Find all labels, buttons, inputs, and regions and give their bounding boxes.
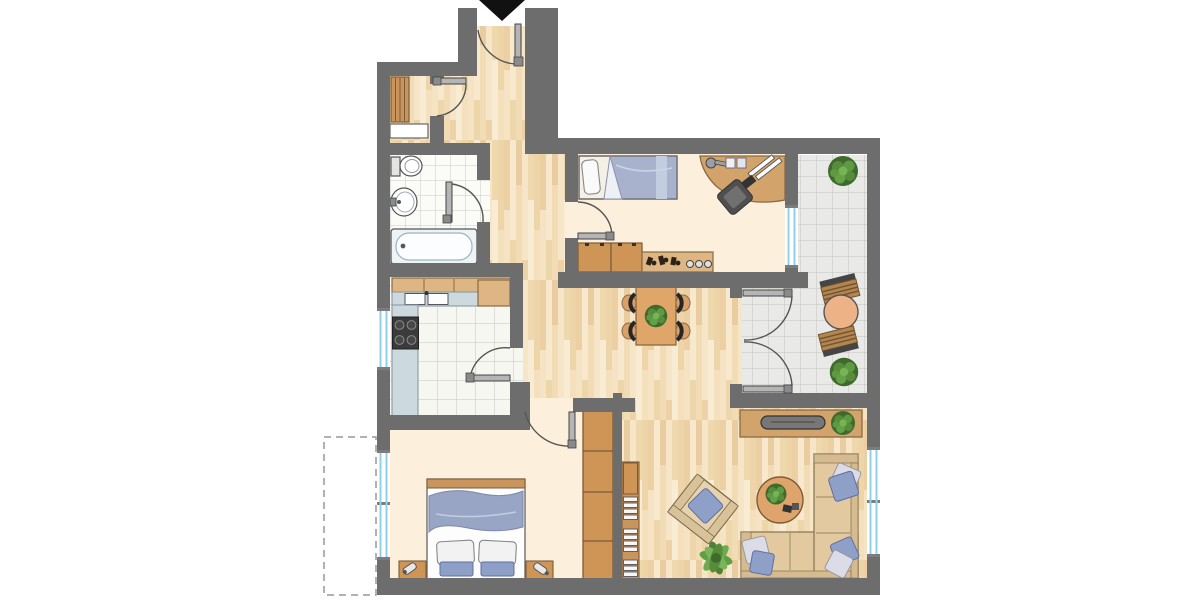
nightstand-left (399, 561, 426, 579)
wall (573, 398, 635, 412)
potted-plant (830, 358, 859, 387)
wall-kitchen-right (510, 277, 523, 348)
bed-pillow (436, 540, 474, 565)
bed-pillow-blue (440, 562, 473, 576)
lowboard-plant (831, 411, 855, 435)
floor-plan (0, 0, 1200, 600)
desk-papers (737, 158, 746, 168)
wall (565, 154, 578, 202)
wall (730, 288, 742, 298)
wall (525, 8, 558, 148)
balcony-table (824, 295, 858, 329)
wall-bathroom-top (377, 143, 490, 155)
wall-bedroom-top (525, 138, 798, 154)
wall (785, 154, 798, 205)
wall-balcony-right (867, 140, 880, 408)
wall (477, 222, 490, 263)
desk-papers (726, 158, 735, 168)
wardrobe (583, 406, 613, 582)
wall-exterior-left (377, 370, 390, 450)
closet-shelf-rack (391, 77, 409, 122)
wall (510, 382, 530, 430)
wall-bedroom-living (613, 393, 622, 587)
wall (458, 8, 477, 64)
window-bedroom-top (785, 205, 798, 268)
bed-blanket (429, 491, 523, 532)
bathtub (391, 229, 477, 264)
bed-pillow-blue (481, 562, 514, 576)
closet-dresser (390, 124, 428, 138)
potted-plant (828, 156, 858, 186)
wall-exterior-bottom (377, 578, 880, 595)
wall-exterior-right (867, 557, 880, 595)
kitchen-corner-counter (478, 280, 510, 306)
wall (377, 62, 477, 76)
entry-arrow (479, 0, 525, 21)
dashed-outline-area (324, 437, 376, 595)
window-kitchen (377, 308, 390, 370)
wall (430, 116, 444, 143)
washbasin (390, 188, 417, 216)
floor-plan-canvas (0, 0, 1200, 600)
wall-exterior-right (867, 408, 880, 447)
toilet (391, 156, 422, 176)
cooktop (393, 317, 419, 349)
wall-bathroom-bottom (377, 263, 523, 277)
wall (558, 272, 808, 288)
bed-pillow (581, 159, 600, 194)
bed-pillow (478, 540, 516, 565)
kitchen-door-leaf (470, 375, 510, 381)
nightstand-right (526, 561, 553, 579)
single-bed (579, 156, 677, 199)
wall-kitchen-bottom (377, 415, 523, 430)
double-bed (427, 479, 525, 580)
wall (730, 393, 880, 408)
wall-balcony-top (797, 138, 880, 154)
table-plant (645, 305, 668, 328)
sofa-pillow (749, 550, 774, 575)
bookshelf (622, 462, 639, 582)
coffee-table (757, 477, 803, 523)
